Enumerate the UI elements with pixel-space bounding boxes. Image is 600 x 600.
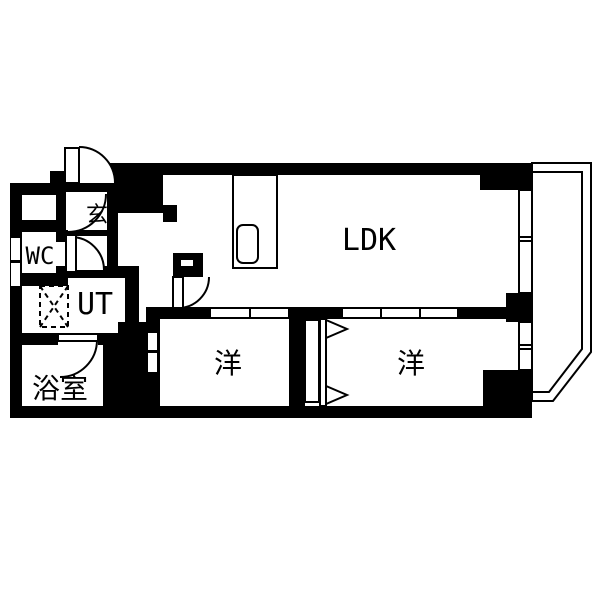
bedroom-left-sliding-panel-1 <box>210 308 250 318</box>
wc-east-wall-upper <box>56 195 66 232</box>
east-wall-mid-block <box>506 293 532 322</box>
room-label-genkan: 玄 <box>86 203 108 228</box>
bath-north-wall-left <box>22 333 58 345</box>
room-label-ldk: LDK <box>342 223 396 258</box>
se-corner-block <box>483 370 532 418</box>
bedroom-right-sliding-panel-3 <box>420 308 458 318</box>
bedroom-right-sliding-panel-2 <box>381 308 420 318</box>
floor-plan-drawing: 玄WCUT浴室LDK洋洋 <box>0 0 600 600</box>
wc-door-leaf <box>66 235 76 272</box>
bath-east-wall <box>103 345 119 406</box>
kitchen-sink <box>237 225 258 263</box>
room-label-bathroom: 浴室 <box>32 372 88 405</box>
ldk-pillar-notch <box>181 260 193 266</box>
hall-bedroom-wall-block <box>118 322 146 406</box>
floor-plan-page: 玄WCUT浴室LDK洋洋 <box>0 0 600 600</box>
entry-door-leaf <box>65 148 79 183</box>
closet-back-panel <box>305 320 319 402</box>
balcony-outline-inner <box>532 172 582 392</box>
wc-top-outer-wall <box>10 183 66 195</box>
left-wall <box>10 183 22 418</box>
entry-jamb <box>50 171 66 183</box>
bath-door-leaf <box>58 334 98 341</box>
bedrooms-divider-wall <box>289 319 305 406</box>
ldk-door-leaf <box>173 277 183 308</box>
genkan-north-wall <box>66 183 107 192</box>
top-wall <box>107 163 532 175</box>
washing-machine-space <box>40 286 68 327</box>
bedroom-left-wall-slit-2 <box>148 353 157 372</box>
bedrooms-north-wall-mid <box>289 307 342 319</box>
bottom-wall <box>10 406 532 418</box>
ldk-ne-corner-block <box>480 163 532 190</box>
closet-folding-door-arrow-bottom <box>326 386 347 404</box>
room-label-bedroom-left: 洋 <box>214 347 242 380</box>
kitchen-west-pillar <box>163 205 177 222</box>
wc-wall-vent-slit-1 <box>11 238 20 260</box>
bedroom-right-sliding-panel-1 <box>342 308 381 318</box>
bath-north-wall-right <box>98 333 118 345</box>
closet-folding-door-arrow-top <box>326 320 347 338</box>
room-label-ut: UT <box>77 287 113 322</box>
room-label-bedroom-right: 洋 <box>397 347 425 380</box>
room-label-wc: WC <box>26 242 55 270</box>
wc-wall-vent-slit-2 <box>11 263 20 286</box>
kitchen-west-block <box>112 165 163 213</box>
bedroom-left-sliding-panel-2 <box>250 308 289 318</box>
wc-east-jamb-top <box>56 232 66 242</box>
bedroom-left-wall-slit-1 <box>148 333 157 350</box>
